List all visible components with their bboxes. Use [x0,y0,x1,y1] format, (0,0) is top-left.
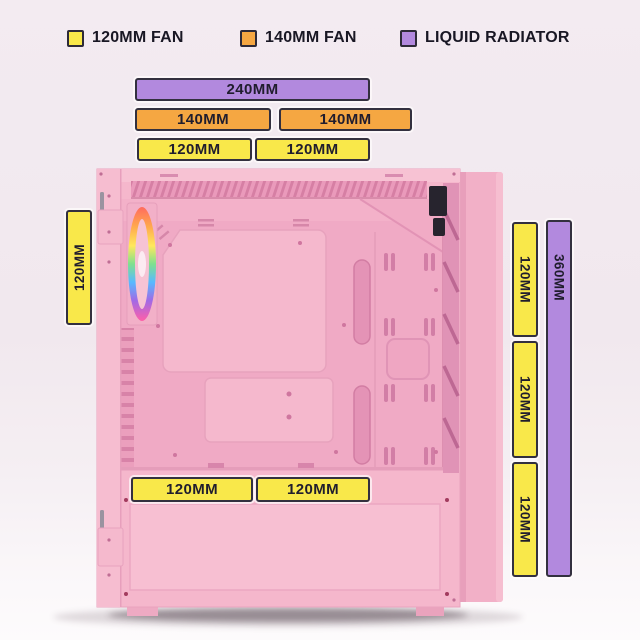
top-bar-140mm-fan-2: 140MM [279,108,412,131]
bar-label: 360MM [552,254,567,301]
legend-label: 140MM FAN [265,29,357,47]
psu-shroud-panel [130,504,440,590]
legend-item-120mm-fan: 120MM FAN [67,29,184,47]
rear-fan-area [443,183,459,473]
top-bar-140mm-fan-1: 140MM [135,108,271,131]
top-vent [131,181,427,199]
legend-label: LIQUID RADIATOR [425,29,570,47]
top-bar-240mm-radiator: 240MM [135,78,370,101]
fan-120mm-swatch-icon [67,30,84,47]
legend-label: 120MM FAN [92,29,184,47]
bar-label: 120MM [72,244,87,291]
bottom-bar-120mm-fan-2: 120MM [256,477,370,502]
radiator-swatch-icon [400,30,417,47]
infographic-canvas: 120MM FAN 140MM FAN LIQUID RADIATOR 240M… [0,0,640,640]
bar-label: 120MM [518,376,533,423]
front-panel [97,169,123,607]
case-shadow [53,607,523,627]
fan-140mm-swatch-icon [240,30,257,47]
rear-bar-120mm-fan-2: 120MM [512,341,538,458]
rear-bar-120mm-fan-1: 120MM [512,222,538,337]
rear-bar-360mm-radiator: 360MM [546,220,572,577]
legend-item-liquid-radiator: LIQUID RADIATOR [400,29,570,47]
cpu-cutout [163,230,326,372]
rgb-fan [127,203,157,325]
top-bar-120mm-fan-1: 120MM [137,138,252,161]
case-rear-panel [458,172,503,602]
bottom-bar-120mm-fan-1: 120MM [131,477,253,502]
front-bar-120mm-fan: 120MM [66,210,92,325]
bar-label: 120MM [518,256,533,303]
rear-bar-120mm-fan-3: 120MM [512,462,538,577]
legend-item-140mm-fan: 140MM FAN [240,29,357,47]
top-bar-120mm-fan-2: 120MM [255,138,370,161]
bar-label: 120MM [518,496,533,543]
